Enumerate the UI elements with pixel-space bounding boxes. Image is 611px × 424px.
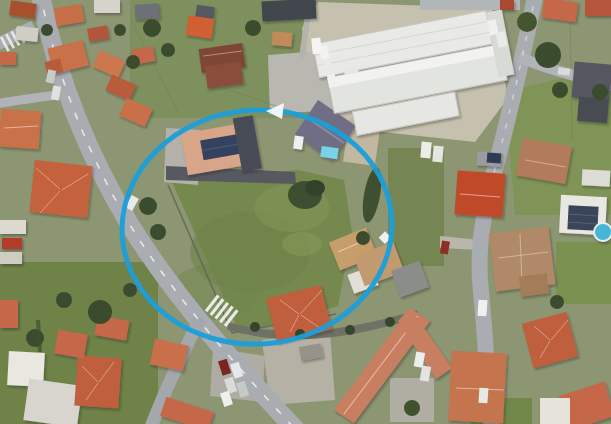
tree [550, 295, 564, 309]
house-roof [23, 378, 82, 424]
above-ground-pool [594, 223, 611, 241]
house-roof [577, 97, 609, 124]
tree [404, 400, 420, 416]
hip-roof-house-left [29, 160, 92, 218]
house-roof [135, 3, 160, 20]
tree [245, 20, 261, 36]
large-white-house [23, 378, 82, 424]
solar-panel-array [487, 153, 502, 164]
house-large-left [0, 109, 41, 150]
tree [126, 55, 140, 69]
tree [305, 180, 325, 196]
industrial-shed [0, 220, 26, 234]
house-roof [585, 0, 611, 16]
white-building [540, 398, 570, 424]
tree [535, 42, 561, 68]
house-roof [54, 330, 88, 359]
swimming-pool [320, 146, 338, 159]
tree [385, 317, 395, 327]
tree [139, 197, 157, 215]
field-worn-patch [282, 232, 322, 256]
van [420, 142, 431, 159]
house-roof [94, 0, 120, 13]
tree [592, 84, 608, 100]
red-container [2, 238, 22, 249]
tree [356, 231, 370, 245]
red-roof-house-mid-right [455, 170, 506, 217]
tree [123, 283, 137, 297]
satellite-image[interactable] [0, 0, 611, 424]
tree [517, 12, 537, 32]
large-tan-villa [489, 227, 556, 297]
tree [161, 43, 175, 57]
garage-roof [271, 31, 292, 47]
van [477, 300, 487, 317]
house-roof [0, 109, 41, 150]
apartment-wing [448, 351, 507, 424]
house-roof [0, 52, 16, 65]
tree [56, 292, 72, 308]
tree [345, 325, 355, 335]
house-roof [15, 26, 38, 42]
tree [552, 82, 568, 98]
tree [114, 24, 126, 36]
lawn-bottom-right [556, 242, 611, 304]
house-roof [519, 273, 549, 296]
tree [250, 322, 260, 332]
truck [311, 38, 321, 55]
solar-panel-array [567, 205, 598, 231]
tree [150, 224, 166, 240]
car [478, 388, 488, 404]
tree [88, 300, 112, 324]
garage-roof [582, 169, 611, 186]
house-roof [29, 160, 92, 218]
house-roof [0, 300, 18, 328]
industrial-shed [0, 252, 22, 264]
house-roof [186, 15, 215, 38]
van [432, 146, 443, 163]
tree [143, 19, 161, 37]
satellite-map-view[interactable] [0, 0, 611, 424]
hip-roof-house-bottom-left [74, 356, 121, 409]
hedge-row [38, 320, 40, 352]
hedged-garden-mid-right [388, 148, 444, 266]
dark-roof-building [262, 0, 317, 21]
house-roof [500, 0, 514, 10]
tree [41, 24, 53, 36]
white-vehicle [293, 136, 304, 150]
